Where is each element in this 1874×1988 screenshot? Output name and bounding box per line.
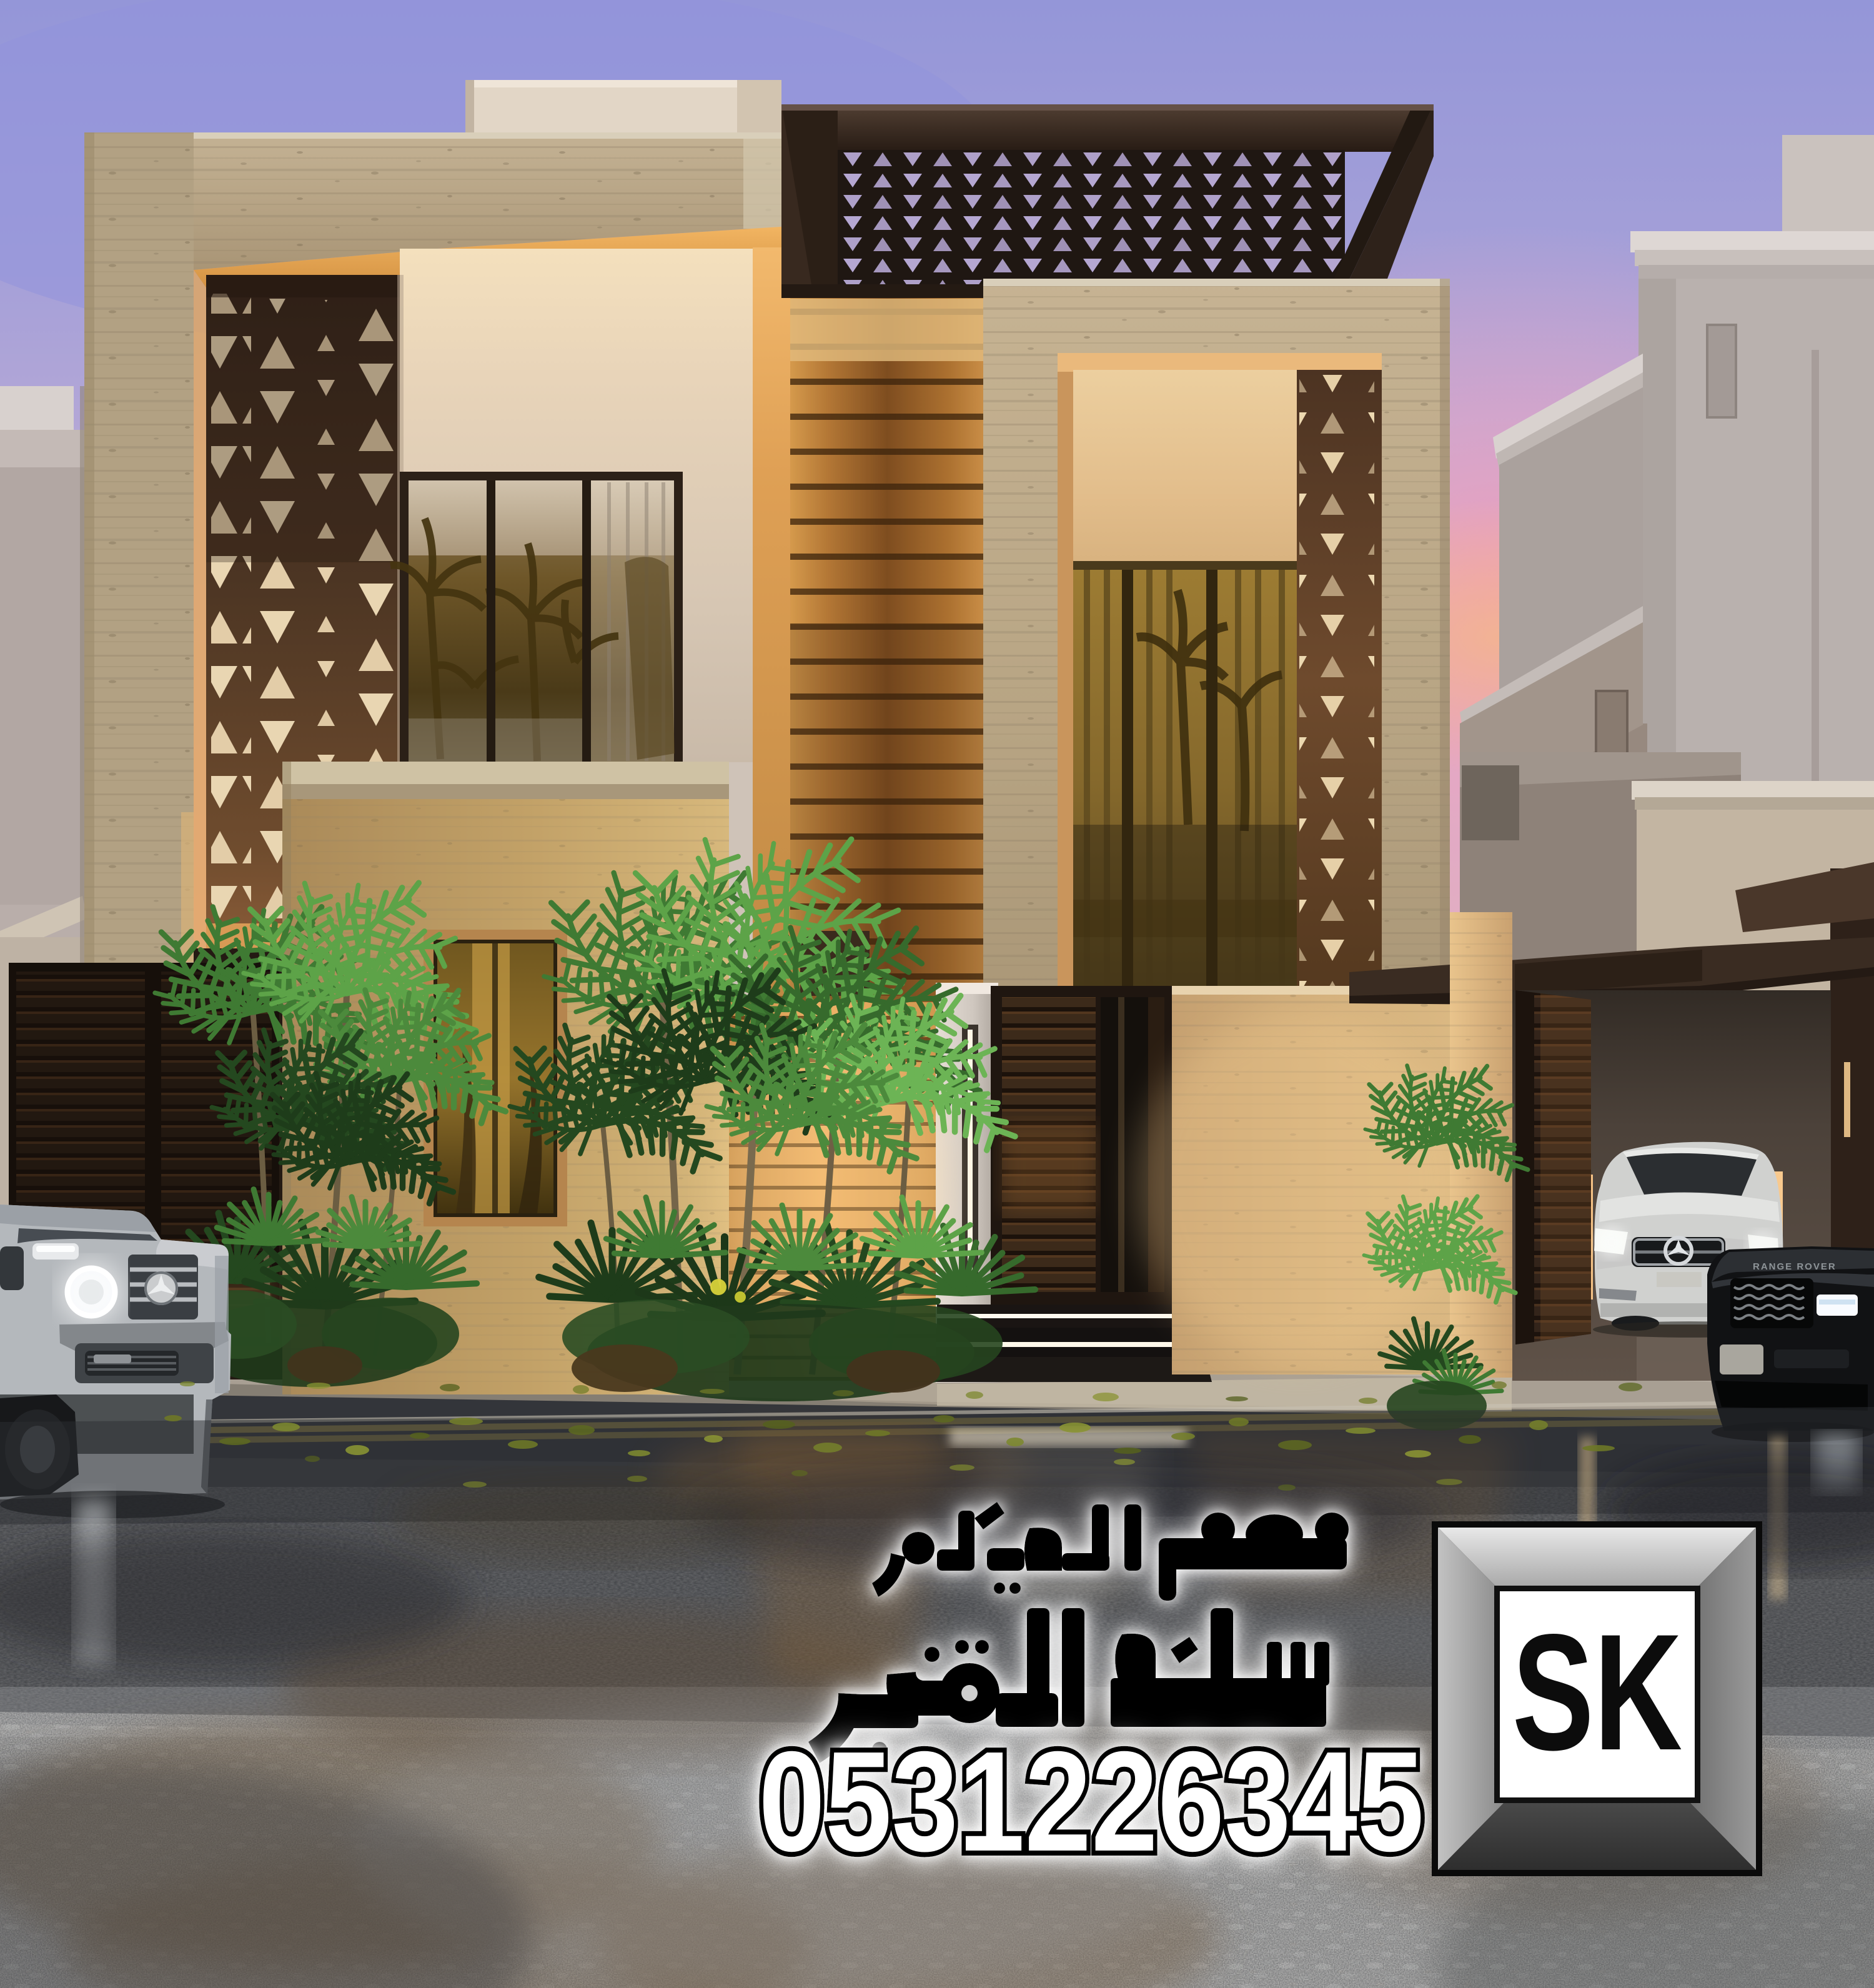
svg-text:RANGE ROVER: RANGE ROVER <box>1753 1261 1837 1272</box>
svg-text:SK: SK <box>1512 1600 1682 1785</box>
svg-text:0531226345: 0531226345 <box>758 1721 1424 1881</box>
